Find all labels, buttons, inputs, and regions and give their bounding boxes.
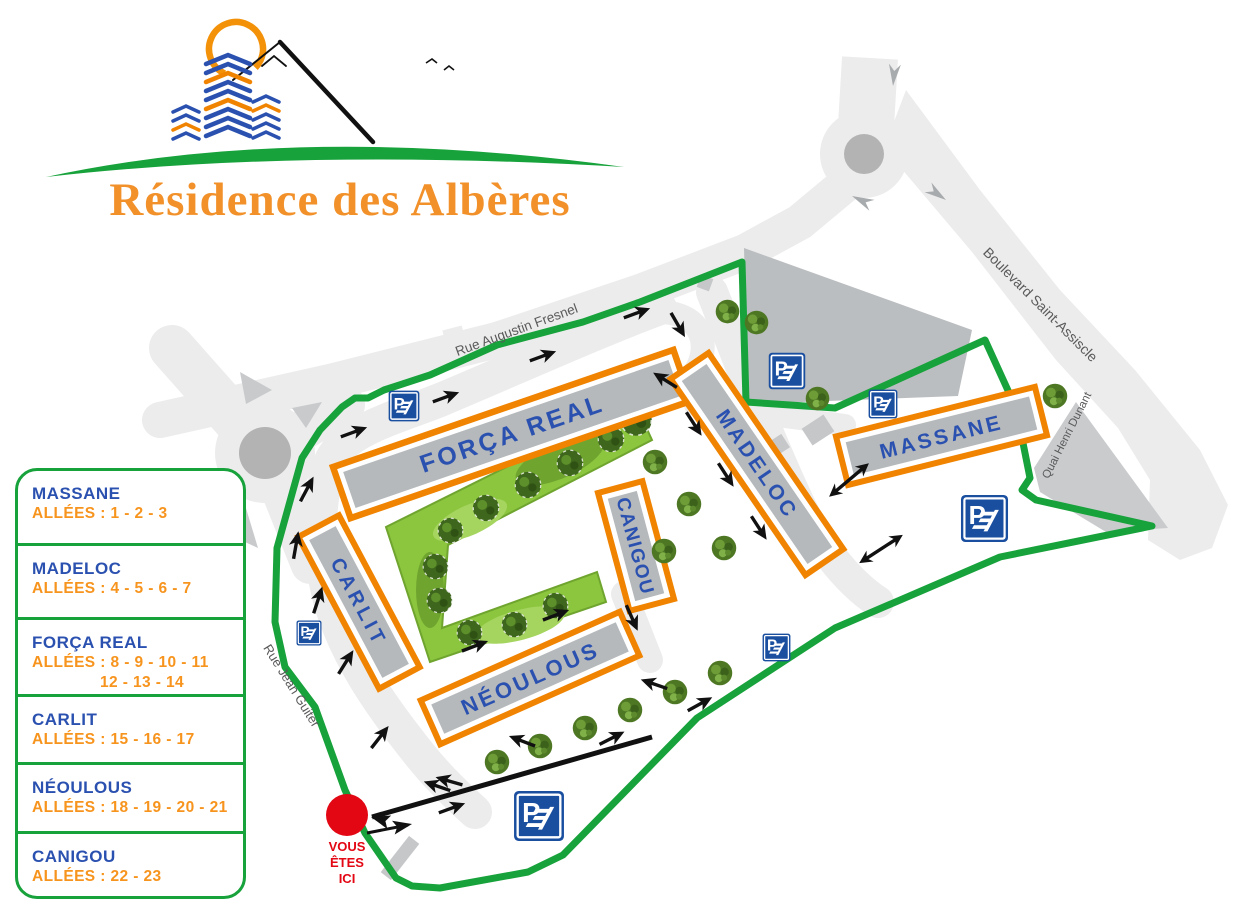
legend-alleys: ALLÉES : 18 - 19 - 20 - 21 [32, 798, 235, 818]
parking-icon [869, 390, 898, 419]
legend-item-madeloc: MADELOC ALLÉES : 4 - 5 - 6 - 7 [18, 546, 243, 620]
building-massane: MASSANE [836, 387, 1047, 485]
street-label-boulevard-saint-assiscle: Boulevard Saint-Assiscle [980, 244, 1101, 365]
legend-alleys: ALLÉES : 1 - 2 - 3 [32, 504, 235, 524]
logo-swoosh-icon [46, 147, 624, 177]
residence-map-page: { "title": "Résidence des Albères", "leg… [0, 0, 1242, 912]
right-roundabout-center [844, 134, 884, 174]
street-label-rue-jean-guiter: Rue Jean Guiter [260, 641, 323, 730]
page-title: Résidence des Albères [109, 174, 570, 226]
parking-icon [389, 391, 420, 422]
left-roundabout-center [239, 427, 291, 479]
legend-alleys: ALLÉES : 8 - 9 - 10 - 11 [32, 653, 235, 673]
logo [46, 13, 624, 177]
legend-alleys-line2: 12 - 13 - 14 [100, 673, 235, 693]
you-are-here: VOUS ÊTES ICI [326, 794, 368, 886]
legend-alleys: ALLÉES : 15 - 16 - 17 [32, 730, 235, 750]
legend-building-name: CANIGOU [32, 846, 235, 867]
parking-icon [769, 353, 805, 389]
parking-icon [514, 791, 564, 841]
parking-icon [961, 495, 1008, 542]
legend-building-name: NÉOULOUS [32, 777, 235, 798]
you-are-here-line2: ÊTES [330, 855, 364, 870]
legend-item-forca-real: FORÇA REAL ALLÉES : 8 - 9 - 10 - 11 12 -… [18, 620, 243, 697]
legend-building-name: MADELOC [32, 558, 235, 579]
legend-alleys: ALLÉES : 4 - 5 - 6 - 7 [32, 579, 235, 599]
two-way-arrow [856, 529, 907, 568]
you-are-here-line3: ICI [339, 871, 356, 886]
legend-building-name: MASSANE [32, 483, 235, 504]
logo-buildings-icon [173, 55, 279, 139]
legend-item-carlit: CARLIT ALLÉES : 15 - 16 - 17 [18, 697, 243, 765]
legend: MASSANE ALLÉES : 1 - 2 - 3 MADELOC ALLÉE… [15, 468, 246, 899]
you-are-here-dot [326, 794, 368, 836]
legend-item-neoulous: NÉOULOUS ALLÉES : 18 - 19 - 20 - 21 [18, 765, 243, 834]
legend-building-name: CARLIT [32, 709, 235, 730]
legend-building-name: FORÇA REAL [32, 632, 235, 653]
legend-item-massane: MASSANE ALLÉES : 1 - 2 - 3 [18, 471, 243, 546]
parking-icon [297, 621, 322, 646]
legend-alleys: ALLÉES : 22 - 23 [32, 867, 235, 887]
legend-item-canigou: CANIGOU ALLÉES : 22 - 23 [18, 834, 243, 899]
you-are-here-line1: VOUS [329, 839, 366, 854]
logo-birds-icon [426, 59, 454, 70]
parking-icon [763, 634, 791, 662]
